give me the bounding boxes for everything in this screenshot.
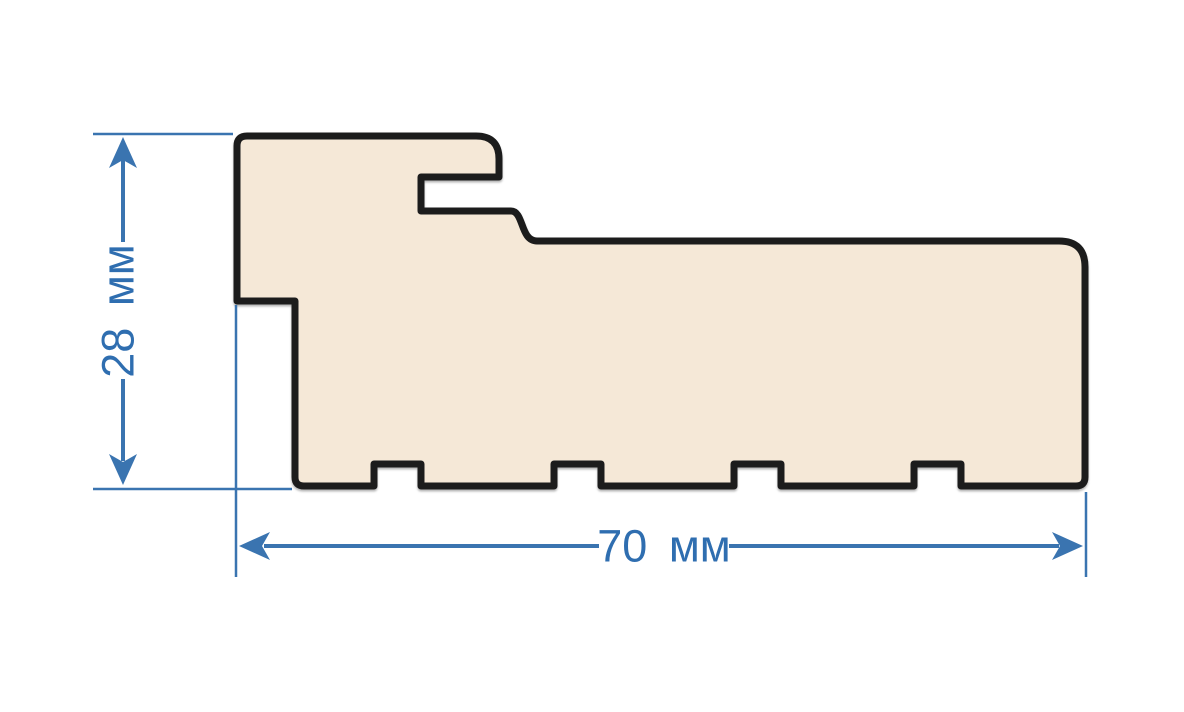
profile-cross-section-drawing: 28 мм 70 мм: [0, 0, 1184, 712]
width-dimension-label: 70 мм: [597, 521, 730, 572]
height-dimension-label: 28 мм: [93, 244, 144, 377]
profile-shape: [237, 136, 1085, 486]
drawing-canvas: 28 мм 70 мм: [0, 0, 1184, 712]
